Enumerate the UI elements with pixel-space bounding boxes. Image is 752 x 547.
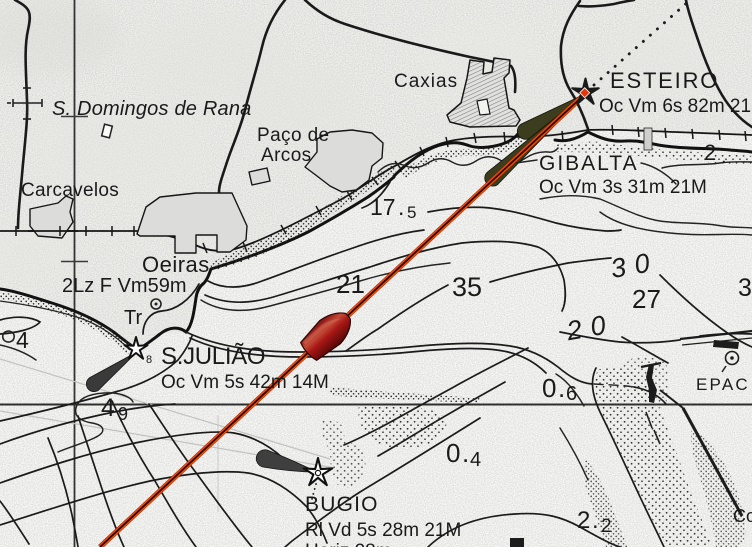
svg-text:2: 2 <box>601 516 612 537</box>
svg-text:0: 0 <box>446 438 460 468</box>
svg-text:2: 2 <box>704 140 716 165</box>
svg-text:3: 3 <box>738 274 752 302</box>
svg-text:27: 27 <box>632 284 661 314</box>
svg-text:EPAC: EPAC <box>696 375 750 394</box>
svg-text:Carcavelos: Carcavelos <box>21 180 119 201</box>
svg-text:5: 5 <box>407 203 416 222</box>
svg-text:Tr: Tr <box>124 307 142 329</box>
svg-text:Caxias: Caxias <box>394 71 458 92</box>
svg-text:Oc Vm 3s 31m 21M: Oc Vm 3s 31m 21M <box>539 177 707 198</box>
svg-text:Co: Co <box>733 506 752 526</box>
svg-text:Paço de: Paço de <box>257 125 330 146</box>
svg-text:2Lz F Vm59m: 2Lz F Vm59m <box>62 275 186 297</box>
svg-text:S. Domingos de Rana: S. Domingos de Rana <box>52 98 251 120</box>
svg-text:ESTEIRO: ESTEIRO <box>610 68 719 93</box>
svg-text:4: 4 <box>470 449 481 471</box>
svg-text:GIBALTA: GIBALTA <box>539 152 639 175</box>
svg-text:Oc Vm 6s 82m 21M: Oc Vm 6s 82m 21M <box>599 96 752 117</box>
svg-text:21: 21 <box>336 269 365 299</box>
svg-text:6: 6 <box>566 383 577 405</box>
svg-text:Rl Vd 5s 28m 21M: Rl Vd 5s 28m 21M <box>305 520 461 541</box>
svg-text:9: 9 <box>118 404 128 424</box>
svg-text:Oeiras: Oeiras <box>142 252 210 277</box>
svg-text:Arcos: Arcos <box>261 145 312 166</box>
svg-text:0: 0 <box>542 373 556 403</box>
svg-text:.: . <box>721 146 727 168</box>
svg-text:.: . <box>558 373 565 403</box>
svg-text:Oc Vm 5s 42m 14M: Oc Vm 5s 42m 14M <box>161 372 329 393</box>
svg-text:2: 2 <box>577 507 590 534</box>
svg-text:.: . <box>592 507 599 534</box>
svg-text:17: 17 <box>370 194 396 220</box>
svg-text:.: . <box>462 438 469 468</box>
svg-text:4: 4 <box>16 327 29 353</box>
svg-text:Horiz 28m: Horiz 28m <box>305 541 392 547</box>
svg-text:4: 4 <box>101 394 115 422</box>
svg-text:.: . <box>398 194 404 220</box>
svg-text:BUGIO: BUGIO <box>305 493 379 516</box>
svg-text:35: 35 <box>452 272 482 302</box>
svg-text:8: 8 <box>146 354 152 366</box>
svg-text:S.JULIÃO: S.JULIÃO <box>161 343 265 370</box>
